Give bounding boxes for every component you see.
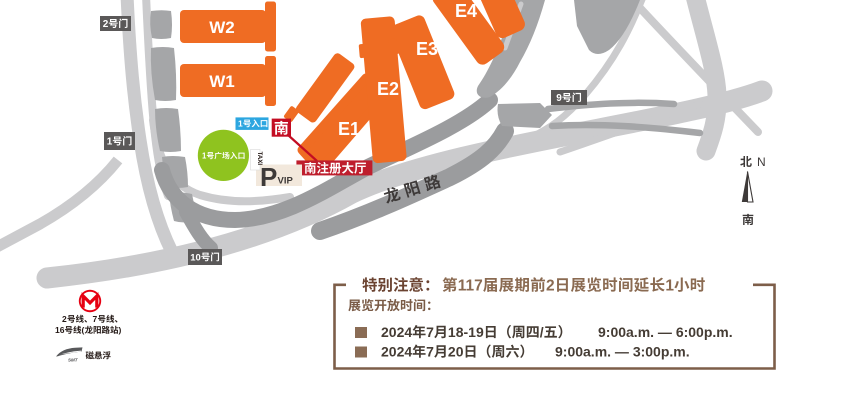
svg-text:N: N (757, 155, 766, 169)
svg-text:VIP: VIP (278, 176, 294, 187)
svg-text:7: 7 (93, 314, 98, 324)
svg-text:2: 2 (546, 278, 555, 295)
svg-text:(: ( (82, 325, 85, 335)
svg-text:P: P (260, 162, 277, 192)
svg-text:18-19: 18-19 (448, 324, 484, 340)
svg-text:10: 10 (190, 252, 201, 263)
svg-text:2024: 2024 (381, 344, 412, 360)
svg-text:E3: E3 (416, 39, 438, 59)
svg-text:): ) (119, 325, 122, 335)
svg-text:20: 20 (448, 344, 464, 360)
svg-text:2: 2 (62, 314, 67, 324)
svg-text:/: / (540, 324, 544, 340)
svg-text:1: 1 (665, 278, 674, 295)
svg-text:117: 117 (458, 278, 483, 295)
svg-text:9:00a.m. — 3:00p.m.: 9:00a.m. — 3:00p.m. (555, 344, 690, 360)
svg-text:1: 1 (238, 119, 243, 129)
svg-text:SMT: SMT (68, 358, 79, 363)
svg-text:9:00a.m. — 6:00p.m.: 9:00a.m. — 6:00p.m. (598, 324, 733, 340)
svg-text:W2: W2 (209, 18, 235, 37)
svg-text:2024: 2024 (381, 324, 412, 340)
svg-text:7: 7 (426, 324, 434, 340)
svg-text:1: 1 (202, 152, 207, 161)
svg-text:7: 7 (426, 344, 434, 360)
svg-text:16: 16 (55, 325, 65, 335)
svg-text:E2: E2 (377, 79, 399, 99)
svg-text:2: 2 (103, 19, 109, 30)
svg-text:E1: E1 (338, 119, 360, 139)
svg-text:1: 1 (107, 137, 113, 148)
svg-text:E4: E4 (455, 1, 477, 21)
svg-text:9: 9 (556, 93, 562, 104)
svg-text:W1: W1 (209, 72, 235, 91)
